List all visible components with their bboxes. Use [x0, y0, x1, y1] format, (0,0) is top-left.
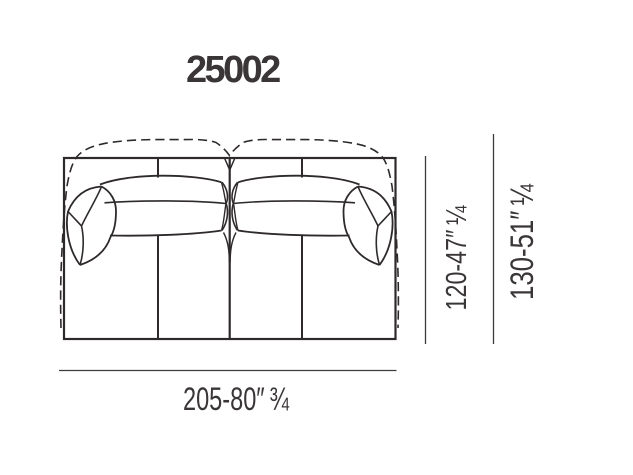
- svg-text:205-80″ ¾: 205-80″ ¾: [183, 381, 290, 417]
- svg-text:25002: 25002: [186, 49, 280, 91]
- svg-text:130-51″ ¼: 130-51″ ¼: [504, 183, 540, 300]
- svg-text:120-47″ ¼: 120-47″ ¼: [441, 205, 473, 311]
